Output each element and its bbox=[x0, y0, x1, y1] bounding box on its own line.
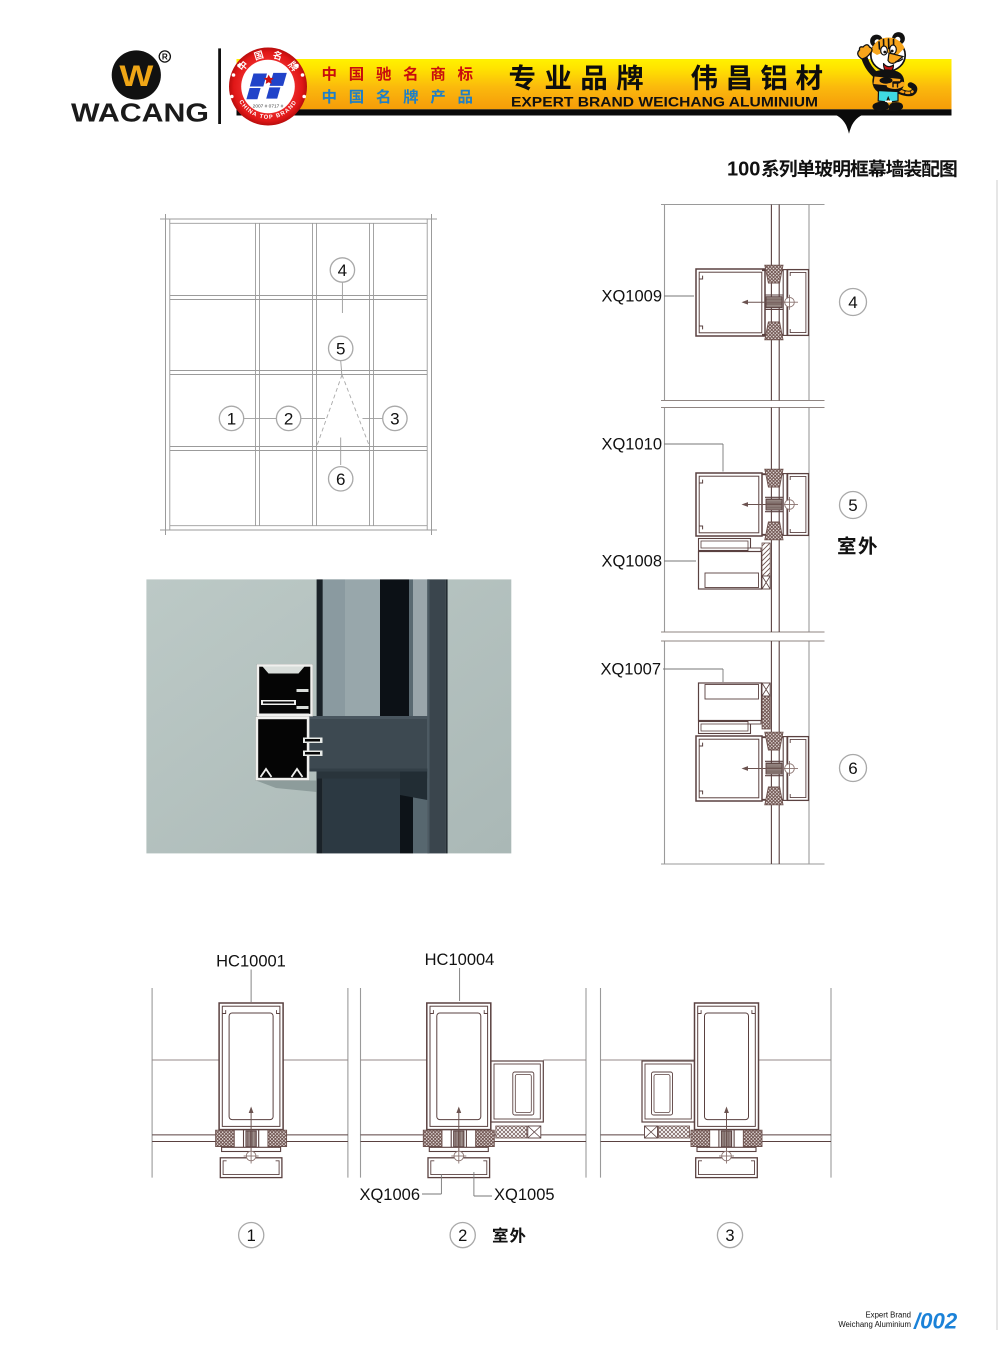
svg-text:5: 5 bbox=[336, 339, 345, 358]
svg-text:HC10004: HC10004 bbox=[425, 951, 495, 969]
svg-text:Weichang Aluminium: Weichang Aluminium bbox=[838, 1320, 911, 1329]
svg-text:1: 1 bbox=[227, 409, 236, 428]
svg-text:XQ1006: XQ1006 bbox=[359, 1186, 420, 1204]
svg-text:XQ1007: XQ1007 bbox=[600, 661, 661, 679]
svg-text:6: 6 bbox=[336, 470, 345, 489]
svg-text:XQ1008: XQ1008 bbox=[601, 553, 662, 571]
svg-text:3: 3 bbox=[725, 1227, 734, 1245]
svg-text:5: 5 bbox=[848, 496, 857, 515]
svg-text:Expert Brand: Expert Brand bbox=[865, 1311, 911, 1320]
svg-text:2: 2 bbox=[458, 1227, 467, 1245]
svg-text:2007 # 0717 #: 2007 # 0717 # bbox=[253, 104, 284, 110]
svg-text:/002: /002 bbox=[913, 1309, 958, 1334]
svg-text:1: 1 bbox=[247, 1227, 256, 1245]
svg-text:4: 4 bbox=[338, 261, 347, 280]
svg-text:4: 4 bbox=[848, 293, 857, 312]
svg-text:WACANG: WACANG bbox=[71, 100, 209, 128]
svg-text:XQ1005: XQ1005 bbox=[494, 1186, 555, 1204]
svg-text:HC10001: HC10001 bbox=[216, 953, 286, 971]
svg-text:XQ1010: XQ1010 bbox=[601, 436, 662, 454]
svg-text:R: R bbox=[162, 53, 168, 62]
svg-text:100: 100 bbox=[727, 159, 760, 181]
svg-text:XQ1009: XQ1009 bbox=[601, 288, 662, 306]
svg-text:6: 6 bbox=[848, 759, 857, 778]
svg-text:EXPERT BRAND WEICHANG ALUMINIU: EXPERT BRAND WEICHANG ALUMINIUM bbox=[511, 95, 818, 110]
svg-text:2: 2 bbox=[284, 409, 293, 428]
svg-text:W: W bbox=[119, 59, 154, 92]
svg-text:3: 3 bbox=[390, 409, 399, 428]
